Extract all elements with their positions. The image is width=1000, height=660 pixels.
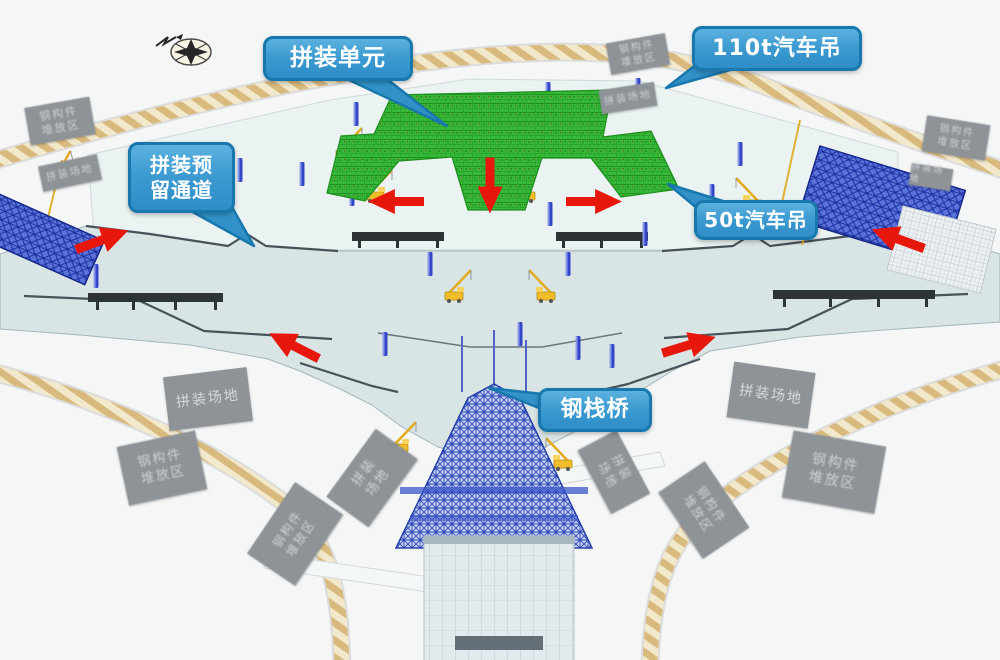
road-sign-se-yard: 拼装场地 — [727, 362, 816, 429]
road-sign-text: 拼装场地 — [175, 386, 241, 412]
road-sign-text: 拼装场地 — [45, 162, 95, 185]
road-sign-sw-yard: 拼装场地 — [163, 367, 253, 431]
callout-reserved-passage-line1: 拼装预 — [150, 153, 213, 178]
callout-assembly-unit: 拼装单元 — [263, 36, 413, 81]
callout-truck-crane-110t-label: 110t汽车吊 — [712, 35, 841, 63]
site-plan-rendering — [0, 0, 1000, 660]
callout-assembly-reserved-passage: 拼装预 留通道 — [128, 142, 235, 213]
callout-steel-trestle: 钢栈桥 — [538, 388, 652, 432]
terminal-core-structure — [424, 536, 574, 660]
callout-assembly-unit-label: 拼装单元 — [290, 44, 386, 73]
callout-reserved-passage-line2: 留通道 — [150, 178, 213, 203]
road-sign-text: 拼装场地 — [738, 382, 804, 409]
callout-truck-crane-50t-label: 50t汽车吊 — [704, 208, 807, 233]
road-sign-text: 拼装场地 — [603, 88, 652, 108]
north-compass-icon — [156, 34, 211, 65]
callout-truck-crane-50t: 50t汽车吊 — [694, 200, 818, 240]
callout-steel-trestle-label: 钢栈桥 — [560, 396, 629, 424]
callout-truck-crane-110t: 110t汽车吊 — [692, 26, 862, 71]
construction-site-plan: 钢构件 堆放区 拼装场地 钢构件 堆放区 拼装场地 钢构件 堆放区 拼装场地 拼… — [0, 0, 1000, 660]
